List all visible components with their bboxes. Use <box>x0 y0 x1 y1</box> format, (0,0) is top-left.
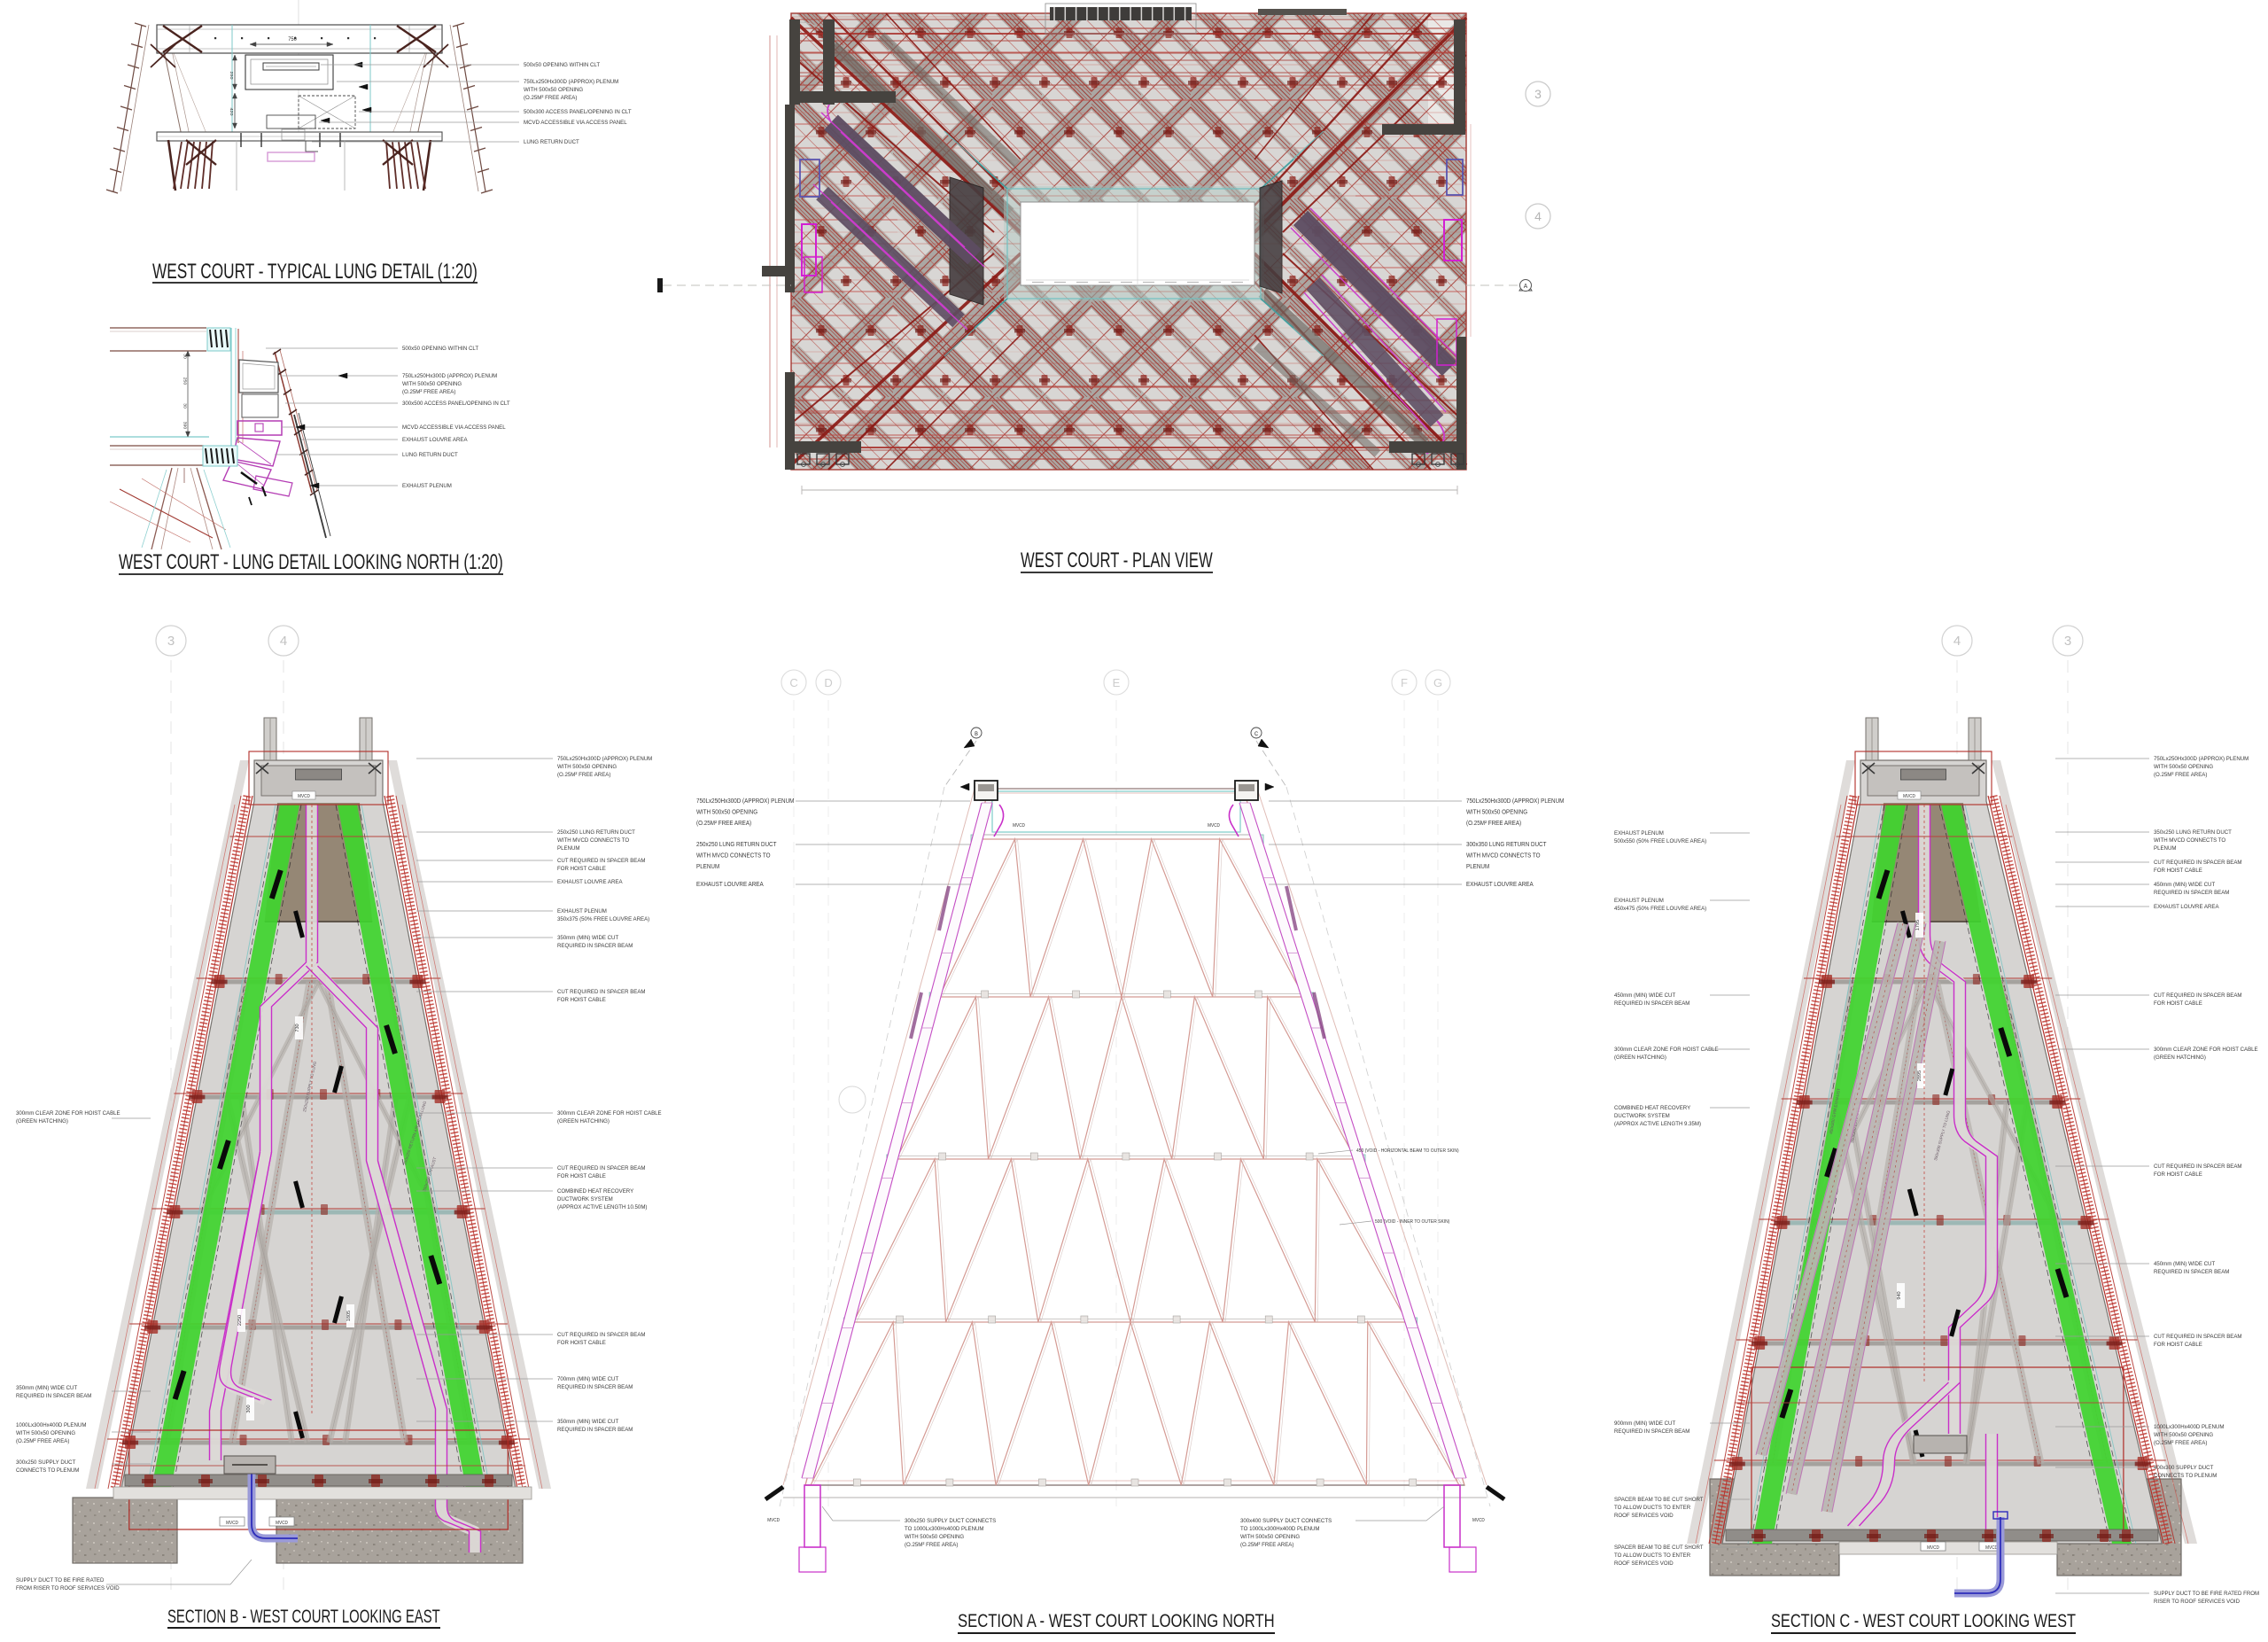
svg-text:(O.25M² FREE AREA): (O.25M² FREE AREA) <box>2154 772 2207 778</box>
svg-text:(O.25M² FREE AREA): (O.25M² FREE AREA) <box>696 821 751 827</box>
svg-text:COMBINED HEAT RECOVERY: COMBINED HEAT RECOVERY <box>1614 1105 1691 1111</box>
svg-text:WITH 500x50 OPENING: WITH 500x50 OPENING <box>2154 764 2213 770</box>
svg-text:300x250 SUPPLY DUCT: 300x250 SUPPLY DUCT <box>16 1459 75 1466</box>
svg-text:450mm (MIN) WIDE CUT: 450mm (MIN) WIDE CUT <box>2154 1261 2215 1267</box>
svg-text:FOR HOIST CABLE: FOR HOIST CABLE <box>557 1340 607 1346</box>
svg-text:MVCD: MVCD <box>226 1521 238 1526</box>
svg-text:1795: 1795 <box>1915 920 1921 930</box>
svg-text:FOR HOIST CABLE: FOR HOIST CABLE <box>557 1173 607 1179</box>
svg-text:SPACER BEAM TO BE CUT SHORT: SPACER BEAM TO BE CUT SHORT <box>1614 1545 1704 1551</box>
svg-text:1000Lx300Hx400D PLENUM: 1000Lx300Hx400D PLENUM <box>2154 1424 2224 1430</box>
svg-text:700mm (MIN) WIDE CUT: 700mm (MIN) WIDE CUT <box>557 1376 618 1382</box>
svg-text:REQUIRED IN SPACER BEAM: REQUIRED IN SPACER BEAM <box>2154 890 2229 896</box>
svg-text:350mm (MIN) WIDE CUT: 350mm (MIN) WIDE CUT <box>557 935 618 941</box>
svg-text:C: C <box>789 676 797 689</box>
svg-text:3: 3 <box>167 634 175 649</box>
svg-text:750Lx250Hx300D (APPROX) PLENUM: 750Lx250Hx300D (APPROX) PLENUM <box>557 756 652 762</box>
svg-text:(O.25M² FREE AREA): (O.25M² FREE AREA) <box>905 1542 958 1548</box>
svg-text:REQUIRED IN SPACER BEAM: REQUIRED IN SPACER BEAM <box>557 1384 633 1390</box>
svg-text:730: 730 <box>295 1023 300 1031</box>
svg-text:450mm (MIN) WIDE CUT: 450mm (MIN) WIDE CUT <box>1614 992 1675 999</box>
svg-text:FOR HOIST CABLE: FOR HOIST CABLE <box>2154 1342 2203 1348</box>
svg-text:A: A <box>1524 284 1528 290</box>
svg-text:(GREEN HATCHING): (GREEN HATCHING) <box>16 1118 68 1124</box>
svg-text:EXHAUST LOUVRE AREA: EXHAUST LOUVRE AREA <box>1466 882 1534 888</box>
svg-text:PLENUM: PLENUM <box>2154 845 2176 852</box>
svg-text:350mm (MIN) WIDE CUT: 350mm (MIN) WIDE CUT <box>16 1385 77 1391</box>
svg-text:PLENUM: PLENUM <box>557 845 579 852</box>
svg-text:PLENUM: PLENUM <box>696 864 719 870</box>
svg-text:MCVD ACCESSIBLE VIA ACCESS PAN: MCVD ACCESSIBLE VIA ACCESS PANEL <box>402 424 506 431</box>
svg-text:WITH 500x50 OPENING: WITH 500x50 OPENING <box>905 1534 964 1540</box>
svg-text:WEST COURT - LUNG DETAIL LOOKI: WEST COURT - LUNG DETAIL LOOKING NORTH (… <box>119 550 503 574</box>
svg-text:(O.25M² FREE AREA): (O.25M² FREE AREA) <box>402 389 455 395</box>
svg-text:CUT REQUIRED IN SPACER BEAM: CUT REQUIRED IN SPACER BEAM <box>557 858 646 864</box>
svg-text:CUT REQUIRED IN SPACER BEAM: CUT REQUIRED IN SPACER BEAM <box>557 1165 646 1171</box>
svg-text:REQUIRED IN SPACER BEAM: REQUIRED IN SPACER BEAM <box>1614 1428 1689 1435</box>
svg-text:WITH MVCD CONNECTS TO: WITH MVCD CONNECTS TO <box>1466 852 1541 859</box>
svg-text:250x250 LUNG RETURN DUCT: 250x250 LUNG RETURN DUCT <box>696 842 776 848</box>
svg-text:500x550 (50% FREE LOUVRE AREA): 500x550 (50% FREE LOUVRE AREA) <box>1614 838 1706 844</box>
svg-text:REQUIRED IN SPACER BEAM: REQUIRED IN SPACER BEAM <box>2154 1269 2229 1275</box>
svg-text:500 (VOID - INNER TO OUTER SKI: 500 (VOID - INNER TO OUTER SKIN) <box>1375 1219 1450 1225</box>
svg-text:(O.25M² FREE AREA): (O.25M² FREE AREA) <box>1240 1542 1293 1548</box>
svg-text:WITH 500x50 OPENING: WITH 500x50 OPENING <box>1240 1534 1300 1540</box>
svg-text:(O.25M² FREE AREA): (O.25M² FREE AREA) <box>2154 1440 2207 1446</box>
svg-text:WITH 500x50 OPENING: WITH 500x50 OPENING <box>16 1430 75 1436</box>
svg-text:CONNECTS TO PLENUM: CONNECTS TO PLENUM <box>2154 1473 2217 1479</box>
svg-text:REQUIRED IN SPACER BEAM: REQUIRED IN SPACER BEAM <box>557 943 633 949</box>
svg-text:450 (VOID - HORIZONTAL BEAM TO: 450 (VOID - HORIZONTAL BEAM TO OUTER SKI… <box>1356 1148 1459 1154</box>
svg-text:900mm (MIN) WIDE CUT: 900mm (MIN) WIDE CUT <box>1614 1420 1675 1427</box>
svg-text:TO 1000Lx300Hx400D PLENUM: TO 1000Lx300Hx400D PLENUM <box>1240 1526 1319 1532</box>
svg-text:TO ALLOW DUCTS TO ENTER: TO ALLOW DUCTS TO ENTER <box>1614 1505 1690 1511</box>
svg-text:EXHAUST LOUVRE AREA: EXHAUST LOUVRE AREA <box>2154 904 2219 910</box>
svg-text:3: 3 <box>2064 634 2071 649</box>
svg-text:MVCD: MVCD <box>1927 1545 1939 1551</box>
svg-text:MVCD: MVCD <box>1208 823 1220 829</box>
svg-text:750Lx250Hx300D (APPROX) PLENUM: 750Lx250Hx300D (APPROX) PLENUM <box>402 373 497 379</box>
svg-text:(GREEN HATCHING): (GREEN HATCHING) <box>1614 1054 1666 1061</box>
svg-text:2895: 2895 <box>1917 1070 1922 1081</box>
svg-text:750Lx250Hx300D (APPROX) PLENUM: 750Lx250Hx300D (APPROX) PLENUM <box>1466 798 1564 805</box>
svg-text:LUNG RETURN DUCT: LUNG RETURN DUCT <box>402 452 458 458</box>
svg-text:300mm CLEAR ZONE FOR HOIST CAB: 300mm CLEAR ZONE FOR HOIST CABLE <box>1614 1047 1719 1053</box>
svg-text:WITH 500x50 OPENING: WITH 500x50 OPENING <box>2154 1432 2213 1438</box>
svg-text:350x375 (50% FREE LOUVRE AREA): 350x375 (50% FREE LOUVRE AREA) <box>557 916 649 922</box>
svg-text:EXHAUST PLENUM: EXHAUST PLENUM <box>1614 830 1664 837</box>
svg-text:WITH 500x50 OPENING: WITH 500x50 OPENING <box>696 809 757 815</box>
svg-text:FOR HOIST CABLE: FOR HOIST CABLE <box>2154 1171 2203 1178</box>
svg-text:(O.25M² FREE AREA): (O.25M² FREE AREA) <box>557 772 610 778</box>
svg-text:250: 250 <box>229 71 234 79</box>
svg-text:CUT REQUIRED IN SPACER BEAM: CUT REQUIRED IN SPACER BEAM <box>557 1332 646 1338</box>
svg-text:WITH MVCD CONNECTS TO: WITH MVCD CONNECTS TO <box>696 852 771 859</box>
svg-text:420: 420 <box>229 107 234 115</box>
svg-text:350mm (MIN) WIDE CUT: 350mm (MIN) WIDE CUT <box>557 1419 618 1425</box>
svg-text:300x250 SUPPLY DUCT CONNECTS: 300x250 SUPPLY DUCT CONNECTS <box>905 1518 997 1524</box>
svg-text:ROOF SERVICES VOID: ROOF SERVICES VOID <box>1614 1560 1674 1567</box>
svg-text:TO 1000Lx300Hx400D PLENUM: TO 1000Lx300Hx400D PLENUM <box>905 1526 983 1532</box>
svg-text:750Lx250Hx300D (APPROX) PLENUM: 750Lx250Hx300D (APPROX) PLENUM <box>2154 756 2249 762</box>
svg-text:G: G <box>1433 676 1442 689</box>
svg-text:TO ALLOW DUCTS TO ENTER: TO ALLOW DUCTS TO ENTER <box>1614 1553 1690 1559</box>
svg-text:MVCD: MVCD <box>1985 1545 1998 1551</box>
svg-text:FOR HOIST CABLE: FOR HOIST CABLE <box>557 997 607 1003</box>
svg-text:SUPPLY DUCT TO BE FIRE RATED: SUPPLY DUCT TO BE FIRE RATED <box>16 1577 105 1584</box>
svg-text:750: 750 <box>288 37 297 43</box>
svg-text:DUCTWORK SYSTEM: DUCTWORK SYSTEM <box>557 1196 613 1202</box>
svg-text:1000Lx300Hx400D PLENUM: 1000Lx300Hx400D PLENUM <box>16 1422 86 1428</box>
svg-text:300mm CLEAR ZONE FOR HOIST CAB: 300mm CLEAR ZONE FOR HOIST CABLE <box>16 1110 120 1117</box>
svg-text:WITH MVCD CONNECTS TO: WITH MVCD CONNECTS TO <box>557 837 629 844</box>
svg-text:COMBINED HEAT RECOVERY: COMBINED HEAT RECOVERY <box>557 1188 634 1195</box>
svg-text:350x250 LUNG RETURN DUCT: 350x250 LUNG RETURN DUCT <box>2154 829 2232 836</box>
svg-text:450mm (MIN) WIDE CUT: 450mm (MIN) WIDE CUT <box>2154 882 2215 888</box>
svg-text:(GREEN HATCHING): (GREEN HATCHING) <box>2154 1054 2206 1061</box>
svg-text:SPACER BEAM TO BE CUT SHORT: SPACER BEAM TO BE CUT SHORT <box>1614 1497 1704 1503</box>
svg-text:MCVD ACCESSIBLE VIA ACCESS PAN: MCVD ACCESSIBLE VIA ACCESS PANEL <box>524 120 627 126</box>
svg-text:MVCD: MVCD <box>276 1521 288 1526</box>
svg-text:EXHAUST PLENUM: EXHAUST PLENUM <box>557 908 607 914</box>
svg-text:940: 940 <box>1897 1291 1902 1299</box>
svg-text:REQUIRED IN SPACER BEAM: REQUIRED IN SPACER BEAM <box>16 1393 91 1399</box>
svg-text:DUCTWORK SYSTEM: DUCTWORK SYSTEM <box>1614 1113 1670 1119</box>
svg-text:E: E <box>1113 676 1121 689</box>
svg-text:(APPROX ACTIVE LENGTH 9.35M): (APPROX ACTIVE LENGTH 9.35M) <box>1614 1121 1701 1127</box>
svg-text:500x50 OPENING WITHIN CLT: 500x50 OPENING WITHIN CLT <box>524 62 600 68</box>
svg-text:EXHAUST LOUVRE AREA: EXHAUST LOUVRE AREA <box>557 879 623 885</box>
svg-text:SUPPLY DUCT TO BE FIRE RATED F: SUPPLY DUCT TO BE FIRE RATED FROM <box>2154 1591 2259 1597</box>
svg-text:750Lx250Hx300D (APPROX) PLENUM: 750Lx250Hx300D (APPROX) PLENUM <box>524 79 618 85</box>
svg-text:250x250 LUNG RETURN DUCT: 250x250 LUNG RETURN DUCT <box>557 829 635 836</box>
svg-text:WITH 500x50 OPENING: WITH 500x50 OPENING <box>402 381 462 387</box>
svg-text:300x350 LUNG RETURN DUCT: 300x350 LUNG RETURN DUCT <box>1466 842 1546 848</box>
svg-text:CUT REQUIRED IN SPACER BEAM: CUT REQUIRED IN SPACER BEAM <box>557 989 646 995</box>
svg-text:FOR HOIST CABLE: FOR HOIST CABLE <box>2154 868 2203 874</box>
svg-text:300x500 ACCESS PANEL/OPENING I: 300x500 ACCESS PANEL/OPENING IN CLT <box>402 401 510 407</box>
svg-text:D: D <box>824 676 832 689</box>
svg-text:MVCD: MVCD <box>1903 794 1915 799</box>
svg-text:1805: 1805 <box>346 1311 352 1321</box>
svg-text:PLENUM: PLENUM <box>1466 864 1489 870</box>
svg-text:CUT REQUIRED IN SPACER BEAM: CUT REQUIRED IN SPACER BEAM <box>2154 1163 2242 1170</box>
svg-text:FOR HOIST CABLE: FOR HOIST CABLE <box>557 866 607 872</box>
svg-text:REQUIRED IN SPACER BEAM: REQUIRED IN SPACER BEAM <box>1614 1000 1689 1007</box>
svg-text:SECTION C - WEST COURT LOOKING: SECTION C - WEST COURT LOOKING WEST <box>1771 1611 2076 1632</box>
svg-text:300mm CLEAR ZONE FOR HOIST CAB: 300mm CLEAR ZONE FOR HOIST CABLE <box>557 1110 662 1117</box>
svg-text:SECTION A - WEST COURT LOOKING: SECTION A - WEST COURT LOOKING NORTH <box>958 1611 1275 1631</box>
svg-text:3: 3 <box>1534 87 1542 101</box>
svg-text:450x475 (50% FREE LOUVRE AREA): 450x475 (50% FREE LOUVRE AREA) <box>1614 906 1706 912</box>
svg-text:B: B <box>975 732 978 737</box>
svg-text:MVCD: MVCD <box>298 794 310 799</box>
svg-text:CUT REQUIRED IN SPACER BEAM: CUT REQUIRED IN SPACER BEAM <box>2154 860 2242 866</box>
svg-text:EXHAUST PLENUM: EXHAUST PLENUM <box>402 483 452 489</box>
svg-text:(O.25M² FREE AREA): (O.25M² FREE AREA) <box>524 95 577 101</box>
svg-text:LUNG RETURN DUCT: LUNG RETURN DUCT <box>524 139 579 145</box>
svg-text:750Lx250Hx300D (APPROX) PLENUM: 750Lx250Hx300D (APPROX) PLENUM <box>696 798 794 805</box>
svg-text:WITH 500x50 OPENING: WITH 500x50 OPENING <box>1466 809 1527 815</box>
svg-text:REQUIRED IN SPACER BEAM: REQUIRED IN SPACER BEAM <box>557 1427 633 1433</box>
svg-text:400x300 SUPPLY DUCT: 400x300 SUPPLY DUCT <box>2154 1465 2213 1471</box>
svg-text:SECTION B - WEST COURT LOOKING: SECTION B - WEST COURT LOOKING EAST <box>167 1605 440 1626</box>
svg-text:C: C <box>1254 732 1258 737</box>
svg-text:500x300 ACCESS PANEL/OPENING I: 500x300 ACCESS PANEL/OPENING IN CLT <box>524 109 632 115</box>
svg-text:CONNECTS TO PLENUM: CONNECTS TO PLENUM <box>16 1467 79 1474</box>
svg-text:EXHAUST PLENUM: EXHAUST PLENUM <box>1614 898 1664 904</box>
svg-text:ROOF SERVICES VOID: ROOF SERVICES VOID <box>1614 1513 1674 1519</box>
svg-text:4: 4 <box>280 634 287 649</box>
svg-text:(APPROX ACTIVE LENGTH 10.50M): (APPROX ACTIVE LENGTH 10.50M) <box>557 1204 647 1210</box>
svg-text:WITH MVCD CONNECTS TO: WITH MVCD CONNECTS TO <box>2154 837 2225 844</box>
svg-text:FOR HOIST CABLE: FOR HOIST CABLE <box>2154 1000 2203 1007</box>
svg-text:RISER TO ROOF SERVICES VOID: RISER TO ROOF SERVICES VOID <box>2154 1599 2240 1605</box>
svg-text:WEST COURT - PLAN VIEW: WEST COURT - PLAN VIEW <box>1021 549 1213 572</box>
svg-text:CUT REQUIRED IN SPACER BEAM: CUT REQUIRED IN SPACER BEAM <box>2154 992 2242 999</box>
svg-text:(O.25M² FREE AREA): (O.25M² FREE AREA) <box>1466 821 1521 827</box>
svg-text:EXHAUST LOUVRE AREA: EXHAUST LOUVRE AREA <box>402 437 468 443</box>
svg-text:(GREEN HATCHING): (GREEN HATCHING) <box>557 1118 610 1124</box>
svg-text:(O.25M² FREE AREA): (O.25M² FREE AREA) <box>16 1438 69 1444</box>
svg-text:EXHAUST LOUVRE AREA: EXHAUST LOUVRE AREA <box>696 882 764 888</box>
svg-text:FROM RISER TO ROOF SERVICES VO: FROM RISER TO ROOF SERVICES VOID <box>16 1585 120 1591</box>
svg-text:2250: 2250 <box>237 1315 243 1326</box>
svg-text:WITH 500x50 OPENING: WITH 500x50 OPENING <box>557 764 617 770</box>
svg-text:300mm CLEAR ZONE FOR HOIST CAB: 300mm CLEAR ZONE FOR HOIST CABLE <box>2154 1047 2258 1053</box>
svg-text:WEST COURT - TYPICAL LUNG DETA: WEST COURT - TYPICAL LUNG DETAIL (1:20) <box>152 260 478 284</box>
svg-text:MVCD: MVCD <box>767 1518 780 1523</box>
svg-text:4: 4 <box>1953 634 1961 649</box>
svg-text:300: 300 <box>246 1405 252 1412</box>
svg-text:F: F <box>1401 676 1408 689</box>
svg-text:300x400 SUPPLY DUCT CONNECTS: 300x400 SUPPLY DUCT CONNECTS <box>1240 1518 1332 1524</box>
svg-text:MVCD: MVCD <box>1472 1518 1485 1523</box>
svg-text:500x50 OPENING WITHIN CLT: 500x50 OPENING WITHIN CLT <box>402 346 478 352</box>
svg-text:WITH 500x50 OPENING: WITH 500x50 OPENING <box>524 87 583 93</box>
svg-text:CUT REQUIRED IN SPACER BEAM: CUT REQUIRED IN SPACER BEAM <box>2154 1334 2242 1340</box>
svg-text:4: 4 <box>1534 209 1542 223</box>
svg-text:MVCD: MVCD <box>1013 823 1025 829</box>
